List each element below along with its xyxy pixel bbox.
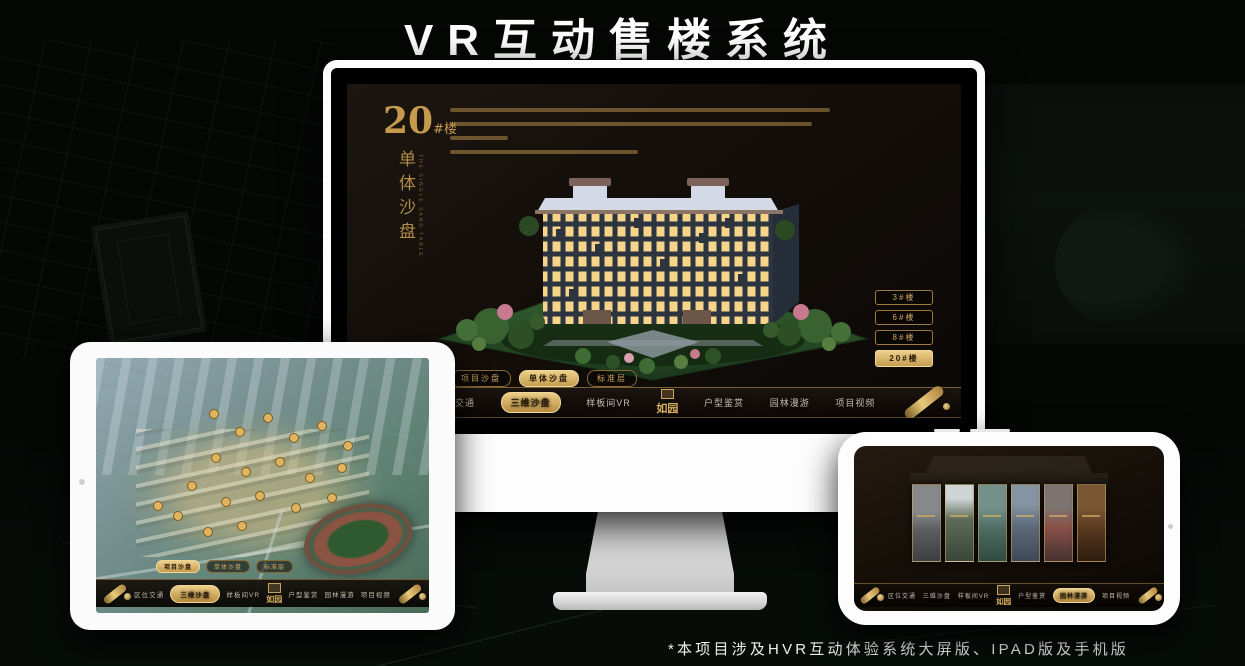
- brand-logo-text: 如园: [656, 400, 678, 416]
- nav-item-project-video[interactable]: 项目视频: [835, 396, 875, 409]
- scroll-menu-icon[interactable]: [397, 590, 423, 598]
- nav-item-project-video[interactable]: 项目视频: [361, 589, 391, 599]
- pano-thumbnail[interactable]: [978, 484, 1007, 562]
- nav-item-3d-sandbox[interactable]: 三维沙盘: [923, 591, 951, 600]
- building-3d-render[interactable]: [433, 134, 873, 384]
- ipad-subtab-standard-floor[interactable]: 标准层: [256, 560, 293, 573]
- brand-logo: 如园: [266, 583, 282, 605]
- brand-seal-icon: [268, 583, 281, 593]
- ipad-subtab-project-sandbox[interactable]: 项目沙盘: [156, 560, 200, 573]
- subtab-project-sandbox[interactable]: 项目沙盘: [451, 370, 511, 387]
- ipad-camera-icon: [79, 479, 85, 485]
- footnote-text: *本项目涉及HVR互动体验系统大屏版、IPAD版及手机版: [668, 638, 1129, 659]
- block-subtitle-vertical: 单体沙盘: [393, 150, 418, 246]
- scroll-menu-icon[interactable]: [102, 590, 128, 598]
- nav-item-project-video[interactable]: 项目视频: [1102, 591, 1130, 600]
- brand-logo-text: 如园: [266, 594, 282, 605]
- subtab-single-sandbox[interactable]: 单体沙盘: [519, 370, 579, 387]
- ipad-navbar: 区位交通 三维沙盘 样板间VR 如园 户型鉴赏 园林漫游 项目视频: [96, 579, 429, 607]
- subtab-standard-floor[interactable]: 标准层: [587, 370, 637, 387]
- pano-thumbnail[interactable]: [1044, 484, 1073, 562]
- nav-item-showroom-vr[interactable]: 样板间VR: [227, 589, 261, 599]
- page-title: VR互动售楼系统: [0, 4, 1245, 68]
- nav-item-3d-sandbox[interactable]: 三维沙盘: [170, 585, 220, 603]
- brand-seal-icon: [997, 585, 1010, 595]
- nav-item-garden-roam[interactable]: 园林漫游: [770, 396, 810, 409]
- nav-item-showroom-vr[interactable]: 样板间VR: [958, 591, 989, 600]
- building-number-badges[interactable]: [96, 358, 429, 613]
- pano-thumbnail[interactable]: [1011, 484, 1040, 562]
- phone-camera-icon: [1168, 524, 1173, 529]
- nav-item-3d-sandbox[interactable]: 三维沙盘: [501, 392, 561, 413]
- background-plaque: [96, 216, 203, 343]
- nav-item-unit-plans[interactable]: 户型鉴赏: [704, 396, 744, 409]
- floor-button-3[interactable]: 3#楼: [875, 290, 933, 305]
- monitor-stand-base: [553, 592, 767, 610]
- pano-thumbnail[interactable]: [1077, 484, 1106, 562]
- monitor-stand-neck: [586, 512, 734, 598]
- scroll-menu-icon[interactable]: [901, 397, 947, 408]
- floor-button-6[interactable]: 6#楼: [875, 310, 933, 325]
- nav-item-garden-roam[interactable]: 园林漫游: [325, 589, 355, 599]
- nav-item-unit-plans[interactable]: 户型鉴赏: [288, 589, 318, 599]
- phone-screen: 区位交通 三维沙盘 样板间VR 如园 户型鉴赏 园林漫游 项目视频: [854, 446, 1164, 611]
- pano-thumbnail[interactable]: [945, 484, 974, 562]
- scroll-menu-icon[interactable]: [859, 592, 881, 599]
- phone-navbar: 区位交通 三维沙盘 样板间VR 如园 户型鉴赏 园林漫游 项目视频: [854, 583, 1164, 607]
- brand-seal-icon: [661, 389, 674, 399]
- nav-item-showroom-vr[interactable]: 样板间VR: [586, 396, 631, 409]
- ipad-screen: 项目沙盘 单体沙盘 标准层 区位交通 三维沙盘 样板间VR 如园 户型鉴赏 园林…: [96, 358, 429, 613]
- scroll-menu-icon[interactable]: [1137, 592, 1159, 599]
- smartphone: 区位交通 三维沙盘 样板间VR 如园 户型鉴赏 园林漫游 项目视频: [838, 432, 1180, 625]
- block-number-value: 20: [383, 100, 433, 142]
- nav-item-unit-plans[interactable]: 户型鉴赏: [1018, 591, 1046, 600]
- phone-volume-button: [934, 429, 960, 432]
- floor-button-8[interactable]: 8#楼: [875, 330, 933, 345]
- phone-power-button: [970, 429, 1010, 432]
- ipad-sandbox-subtabs: 项目沙盘 单体沙盘 标准层: [156, 560, 293, 573]
- nav-item-garden-roam[interactable]: 园林漫游: [1053, 588, 1095, 603]
- brand-logo: 如园: [996, 585, 1011, 607]
- floor-button-column: 3#楼 6#楼 8#楼 20#楼: [875, 290, 933, 367]
- ipad-subtab-single-sandbox[interactable]: 单体沙盘: [206, 560, 250, 573]
- nav-item-location-traffic[interactable]: 区位交通: [888, 591, 916, 600]
- background-photo-collage: [983, 84, 1245, 344]
- background-river: [1055, 200, 1205, 330]
- presentation-canvas: VR互动售楼系统 20#楼 单体沙盘 THE SINGLE SAND TABLE: [0, 0, 1245, 666]
- pano-thumbnail[interactable]: [912, 484, 941, 562]
- block-subtitle-english: THE SINGLE SAND TABLE: [417, 154, 423, 258]
- ipad-tablet: 项目沙盘 单体沙盘 标准层 区位交通 三维沙盘 样板间VR 如园 户型鉴赏 园林…: [70, 342, 455, 630]
- floor-button-20[interactable]: 20#楼: [875, 350, 933, 367]
- sandbox-subtabs: 项目沙盘 单体沙盘 标准层: [451, 370, 637, 387]
- nav-item-location-traffic[interactable]: 区位交通: [134, 589, 164, 599]
- background-map-grid: [0, 40, 340, 360]
- brand-logo-text: 如园: [996, 596, 1011, 607]
- panorama-gallery: [912, 484, 1106, 562]
- brand-logo: 如园: [656, 389, 678, 416]
